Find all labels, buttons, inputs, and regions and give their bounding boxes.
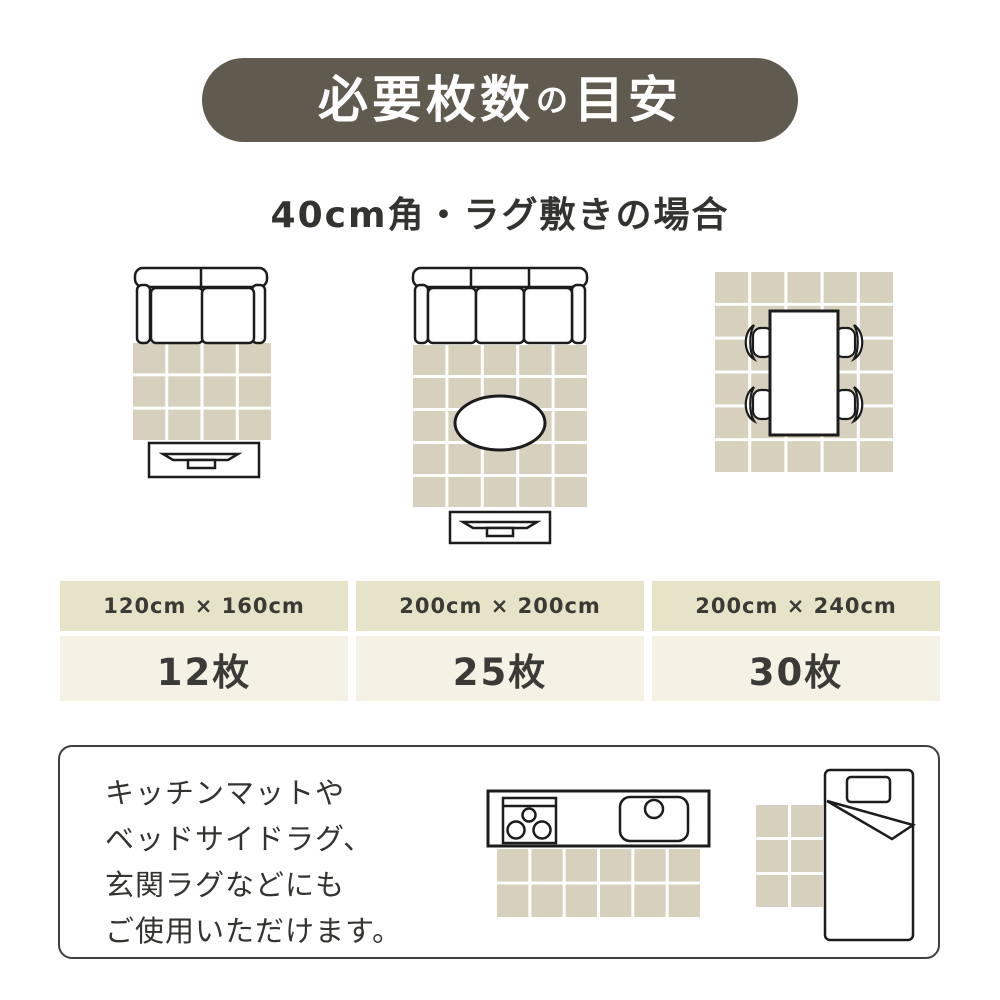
kitchen-mat-grid: [497, 849, 700, 917]
title-banner: 必要枚数 の 目安: [202, 58, 798, 142]
title-text-sub: 目安: [574, 75, 682, 125]
title-text-main: 必要枚数: [318, 75, 534, 125]
tv-board-icon: [450, 512, 550, 543]
card-count-label: 25枚: [356, 636, 644, 701]
card-size-25: 200cm × 200cm 25枚: [356, 581, 644, 701]
card-size-label: 200cm × 240cm: [652, 581, 940, 631]
sink-icon: [620, 797, 688, 841]
layout-illustration-dining: [710, 262, 900, 472]
rug-grid-12: [133, 343, 271, 440]
bedside-mat-grid: [756, 805, 823, 907]
dining-table-icon: [770, 311, 838, 435]
oval-coffee-table-icon: [455, 396, 545, 450]
pillow-icon: [847, 777, 890, 802]
card-size-label: 200cm × 200cm: [356, 581, 644, 631]
note-line: ご使用いただけます。: [105, 908, 465, 954]
sofa-3seat-icon: [413, 268, 587, 343]
card-size-30: 200cm × 240cm 30枚: [652, 581, 940, 701]
sofa-2seat-icon: [135, 268, 267, 343]
layout-illustration-living-3seat: [405, 262, 595, 552]
card-count-label: 30枚: [652, 636, 940, 701]
bed-illustration: [750, 765, 920, 945]
tv-board-icon: [149, 443, 259, 477]
usage-note-text: キッチンマットや ベッドサイドラグ、 玄関ラグなどにも ご使用いただけます。: [105, 770, 465, 954]
note-line: ベッドサイドラグ、: [105, 816, 465, 862]
subtitle: 40cm角・ラグ敷きの場合: [0, 186, 1000, 238]
title-text-particle: の: [534, 84, 574, 116]
kitchen-counter-icon: [488, 791, 709, 846]
note-line: 玄関ラグなどにも: [105, 862, 465, 908]
layout-illustration-living-2seat: [110, 262, 290, 492]
stove-icon: [503, 798, 556, 843]
note-line: キッチンマットや: [105, 770, 465, 816]
kitchen-illustration: [486, 788, 712, 920]
card-size-label: 120cm × 160cm: [60, 581, 348, 631]
card-count-label: 12枚: [60, 636, 348, 701]
card-size-12: 120cm × 160cm 12枚: [60, 581, 348, 701]
bed-icon: [825, 770, 913, 940]
